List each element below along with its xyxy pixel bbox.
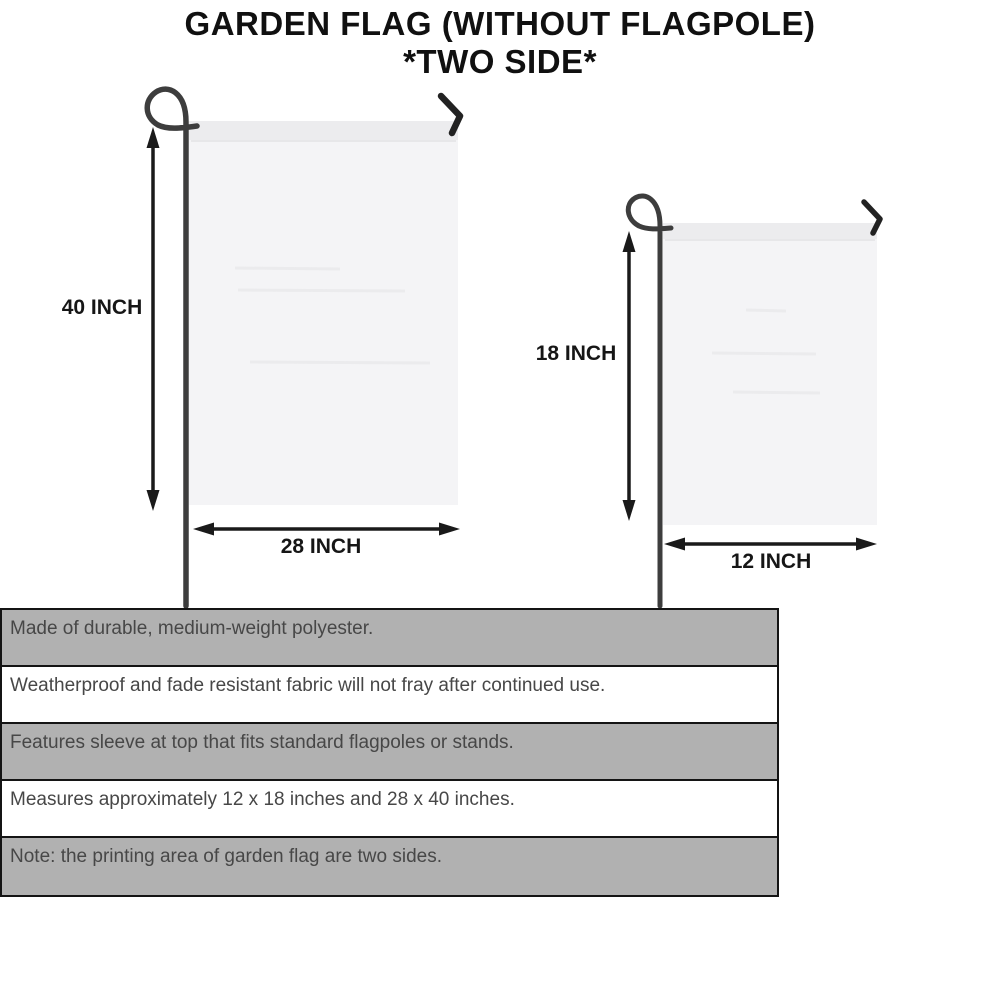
features-table: Made of durable, medium-weight polyester… — [0, 608, 779, 897]
large-flag-sleeve — [189, 121, 458, 140]
feature-row-material: Made of durable, medium-weight polyester… — [2, 610, 777, 667]
large-flag-height-arrow — [147, 127, 160, 511]
feature-row-note: Note: the printing area of garden flag a… — [2, 838, 777, 895]
flags-diagram — [0, 0, 1000, 610]
small-flag-body — [663, 223, 877, 525]
large-flag-width-label: 28 INCH — [281, 535, 362, 559]
large-flag-body — [189, 121, 458, 505]
feature-row-weatherproof: Weatherproof and fade resistant fabric w… — [2, 667, 777, 724]
small-flag-height-arrow — [623, 231, 636, 521]
large-flag-height-label: 40 INCH — [62, 296, 143, 320]
product-infographic: GARDEN FLAG (WITHOUT FLAGPOLE) *TWO SIDE… — [0, 0, 1000, 1000]
small-flag-sleeve — [663, 223, 877, 239]
small-flag-width-label: 12 INCH — [731, 550, 812, 574]
large-flag-width-arrow — [193, 523, 460, 536]
large-flag-group — [147, 89, 461, 606]
small-flag-width-arrow — [664, 538, 877, 551]
feature-row-measurements: Measures approximately 12 x 18 inches an… — [2, 781, 777, 838]
small-flag-group — [623, 196, 881, 606]
small-flag-height-label: 18 INCH — [536, 342, 617, 366]
feature-row-sleeve: Features sleeve at top that fits standar… — [2, 724, 777, 781]
